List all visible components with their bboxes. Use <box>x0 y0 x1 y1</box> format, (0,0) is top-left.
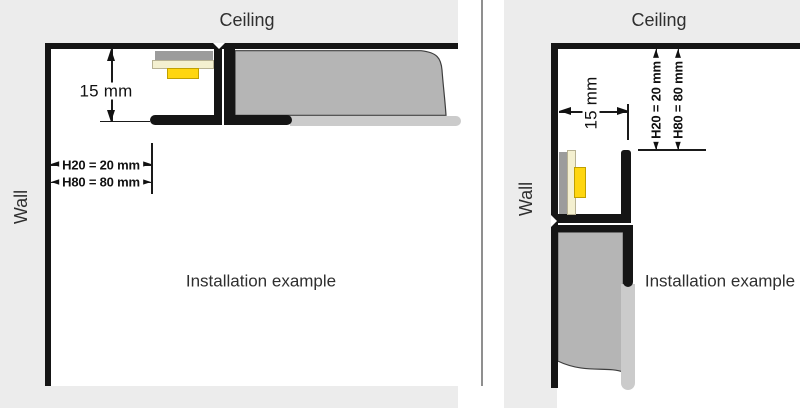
dim-end-tick <box>638 149 706 151</box>
wall-label: Wall <box>517 182 535 216</box>
arrow-right-icon <box>617 107 629 115</box>
panel-divider <box>481 0 483 386</box>
plaster-shadow <box>621 284 635 390</box>
installation-caption: Installation example <box>645 273 795 290</box>
arrow-up-icon <box>107 49 115 61</box>
dim-h20-label: H20 = 20 mm <box>59 159 143 172</box>
drywall-board <box>235 50 459 117</box>
profile-anchor-lip <box>224 115 292 125</box>
ceiling-label: Ceiling <box>631 11 686 29</box>
arrow-down-icon <box>107 110 115 122</box>
arrow-left-icon <box>559 107 571 115</box>
profile-base <box>155 51 213 60</box>
led-strip <box>574 167 586 198</box>
wall-line <box>45 43 51 386</box>
profile-channel-leg <box>214 49 222 125</box>
drywall-board <box>557 232 625 375</box>
profile-joint-notch <box>551 215 557 227</box>
profile-anchor-leg <box>224 49 235 125</box>
plaster-shadow <box>290 116 461 126</box>
ceiling-label: Ceiling <box>219 11 274 29</box>
profile-channel-lip <box>551 214 631 223</box>
profile-joint-notch <box>213 43 225 49</box>
profile-anchor-lip <box>623 225 633 287</box>
led-strip <box>167 68 199 79</box>
dim-15mm-label: 15 mm <box>583 74 600 133</box>
dim-15mm-label: 15 mm <box>77 83 136 100</box>
installation-diagram: 15 mm H20 = 20 mm H80 = 80 mm Ceiling Wa… <box>0 0 800 408</box>
profile-channel-lip <box>150 115 222 125</box>
profile-channel-leg <box>621 150 631 223</box>
dim-end-tick <box>151 143 153 194</box>
dim-h80-label: H80 = 80 mm <box>672 58 685 142</box>
profile-anchor-leg <box>551 225 633 232</box>
installation-caption: Installation example <box>186 273 336 290</box>
wall-label: Wall <box>12 190 30 224</box>
dim-h80-label: H80 = 80 mm <box>59 176 143 189</box>
dim-h20-label: H20 = 20 mm <box>650 58 663 142</box>
